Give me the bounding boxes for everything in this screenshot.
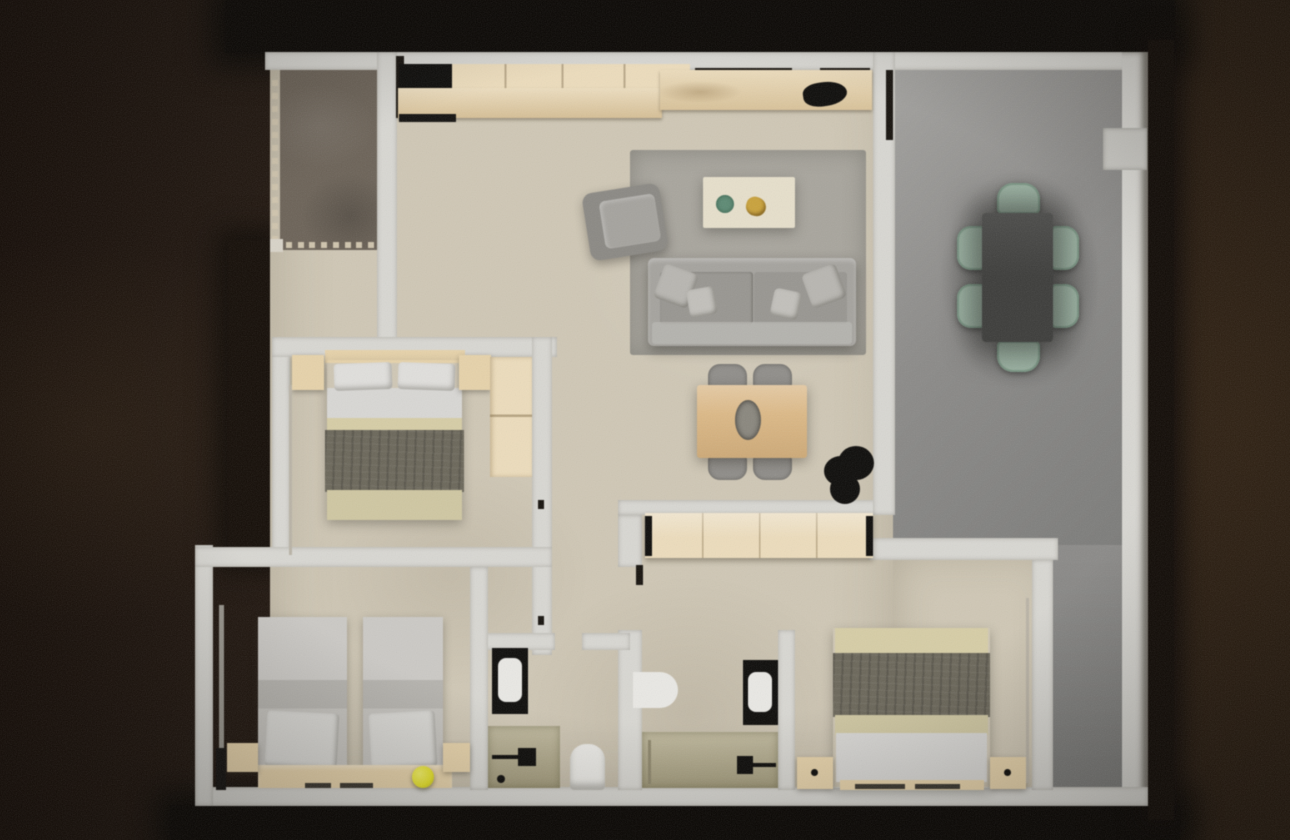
balcony-floor [280, 66, 377, 250]
balustrade-dot [272, 197, 278, 203]
drawer-knob-icon [1004, 769, 1011, 776]
refrigerator [399, 64, 452, 90]
outdoor-chair-top [997, 183, 1040, 214]
balustrade-dot [298, 242, 304, 248]
sofa-pillow-4 [769, 287, 802, 320]
void-right [1148, 40, 1174, 820]
balustrade-dot [272, 158, 278, 164]
balustrade-bottom [286, 242, 374, 252]
hall-wardrobe-cap-right [866, 516, 873, 556]
outdoor-table [982, 213, 1053, 342]
bed2-nightstand-right [443, 743, 470, 772]
balustrade-dot [272, 119, 278, 125]
bath2-shower [642, 732, 778, 788]
bed2-radiator-line [219, 605, 224, 748]
void-left [228, 240, 272, 560]
balustrade-dot [345, 242, 351, 248]
balustrade-dot [272, 80, 278, 86]
balustrade-dot [272, 223, 278, 229]
yellow-ball [412, 766, 434, 788]
balustrade-dot [333, 242, 339, 248]
wall-bed2-top [195, 547, 552, 567]
balustrade-dot [368, 242, 374, 248]
bath1-shower-arm [492, 755, 520, 759]
bed1-door-jamb-a [538, 500, 544, 509]
bed1-nightstand-left [292, 355, 324, 390]
terrace-floor-lower [1053, 545, 1126, 792]
wall-bed1-right [532, 337, 552, 655]
bath2-mat [633, 672, 678, 708]
bed2-headboard-mark-a [305, 783, 331, 788]
balustrade-dot [272, 145, 278, 151]
wall-balcony-right [377, 52, 397, 357]
balustrade-corner [270, 239, 283, 252]
floor-plan-render [0, 0, 1290, 840]
bed3-nightstand-left [797, 757, 833, 789]
balustrade-dot [272, 171, 278, 177]
bath1-shower-head [518, 748, 536, 766]
bath2-glass-line [648, 740, 651, 784]
balustrade-dot [272, 210, 278, 216]
bed1-nightstand-right [459, 355, 491, 390]
wall-bath-divider-lower [618, 630, 642, 790]
bed1-pillow-left [334, 362, 393, 391]
bath1-sink [498, 658, 522, 702]
sofa-front [652, 322, 852, 344]
balustrade-dot [286, 242, 292, 248]
plant-blob-3 [830, 474, 860, 504]
sofa-pillow-2 [686, 286, 718, 318]
outdoor-chair-left-2 [957, 284, 985, 328]
armchair-seat [599, 193, 662, 249]
bed1-wardrobe [490, 357, 532, 477]
hall-wardrobe [645, 513, 873, 558]
toilet [570, 744, 605, 790]
bed1-door-jamb-b [538, 616, 544, 625]
single-bed-left-pillow [265, 710, 340, 770]
terrace-door-jamb [886, 70, 893, 140]
bed2-headboard-mark-b [340, 783, 373, 788]
balustrade-left [272, 80, 282, 242]
plant [820, 446, 876, 510]
bed3-footer-mark-b [915, 784, 960, 789]
balustrade-dot [272, 184, 278, 190]
balustrade-dot [356, 242, 362, 248]
dining-chair-3 [708, 456, 747, 480]
bath1-drain [497, 775, 505, 783]
bed3-throw [833, 653, 990, 717]
wall-terrace-bottom [868, 538, 1058, 560]
bed3-band [835, 715, 988, 735]
bed3-wall-line [1026, 598, 1029, 783]
wall-left-mid [272, 337, 290, 565]
outdoor-chair-bottom [997, 341, 1040, 372]
bed2-radiator [216, 748, 226, 790]
kitchen-upper-cabinets [452, 64, 690, 89]
bath2-shower-arm [753, 763, 776, 767]
outdoor-chair-right-2 [1051, 284, 1079, 328]
wall-unit [1103, 128, 1147, 170]
balustrade-dot [321, 242, 327, 248]
decor-bowl [716, 195, 734, 213]
bed2-nightstand-left [227, 743, 258, 772]
bed1-throw [325, 430, 464, 492]
bed1-sheet [327, 388, 462, 420]
single-bed-right-pillow [369, 710, 438, 769]
dining-chair-4 [753, 456, 792, 480]
bed1-pillow-right [398, 362, 456, 391]
armchair [581, 182, 669, 261]
outdoor-chair-right-1 [1051, 226, 1079, 270]
drawer-knob-icon [811, 769, 818, 776]
bed3 [833, 628, 990, 788]
bath2-sink [748, 672, 772, 712]
wall-bed3-right [1032, 560, 1053, 790]
balustrade-dot [272, 93, 278, 99]
wall-bath-divider-upper [618, 515, 642, 567]
wall-bath2-bed3-divider [778, 630, 795, 790]
counter-shadow-line [399, 114, 456, 122]
hall-wardrobe-cap-left [645, 516, 652, 556]
wall-bottom [195, 787, 1148, 806]
bed3-footer-mark-a [855, 784, 905, 789]
outdoor-chair-left-1 [957, 226, 985, 270]
balustrade-dot [309, 242, 315, 248]
dining-vase [735, 400, 761, 440]
bed3-sheet [836, 733, 987, 782]
void-bottom [170, 805, 1180, 840]
wall-left-lower [195, 545, 213, 806]
bed3-top-band [835, 628, 988, 655]
bath2-shower-head [737, 756, 753, 774]
hall-door-jamb [636, 565, 643, 585]
wall-bed2-bath-divider [470, 567, 488, 790]
bed3-nightstand-right [990, 757, 1026, 789]
void-top [225, 0, 1175, 53]
wall-bath1-top-right [582, 633, 630, 650]
balustrade-dot [272, 106, 278, 112]
balustrade-dot [272, 132, 278, 138]
bed1-wall-line [289, 385, 292, 555]
bed1-foot [327, 490, 462, 520]
